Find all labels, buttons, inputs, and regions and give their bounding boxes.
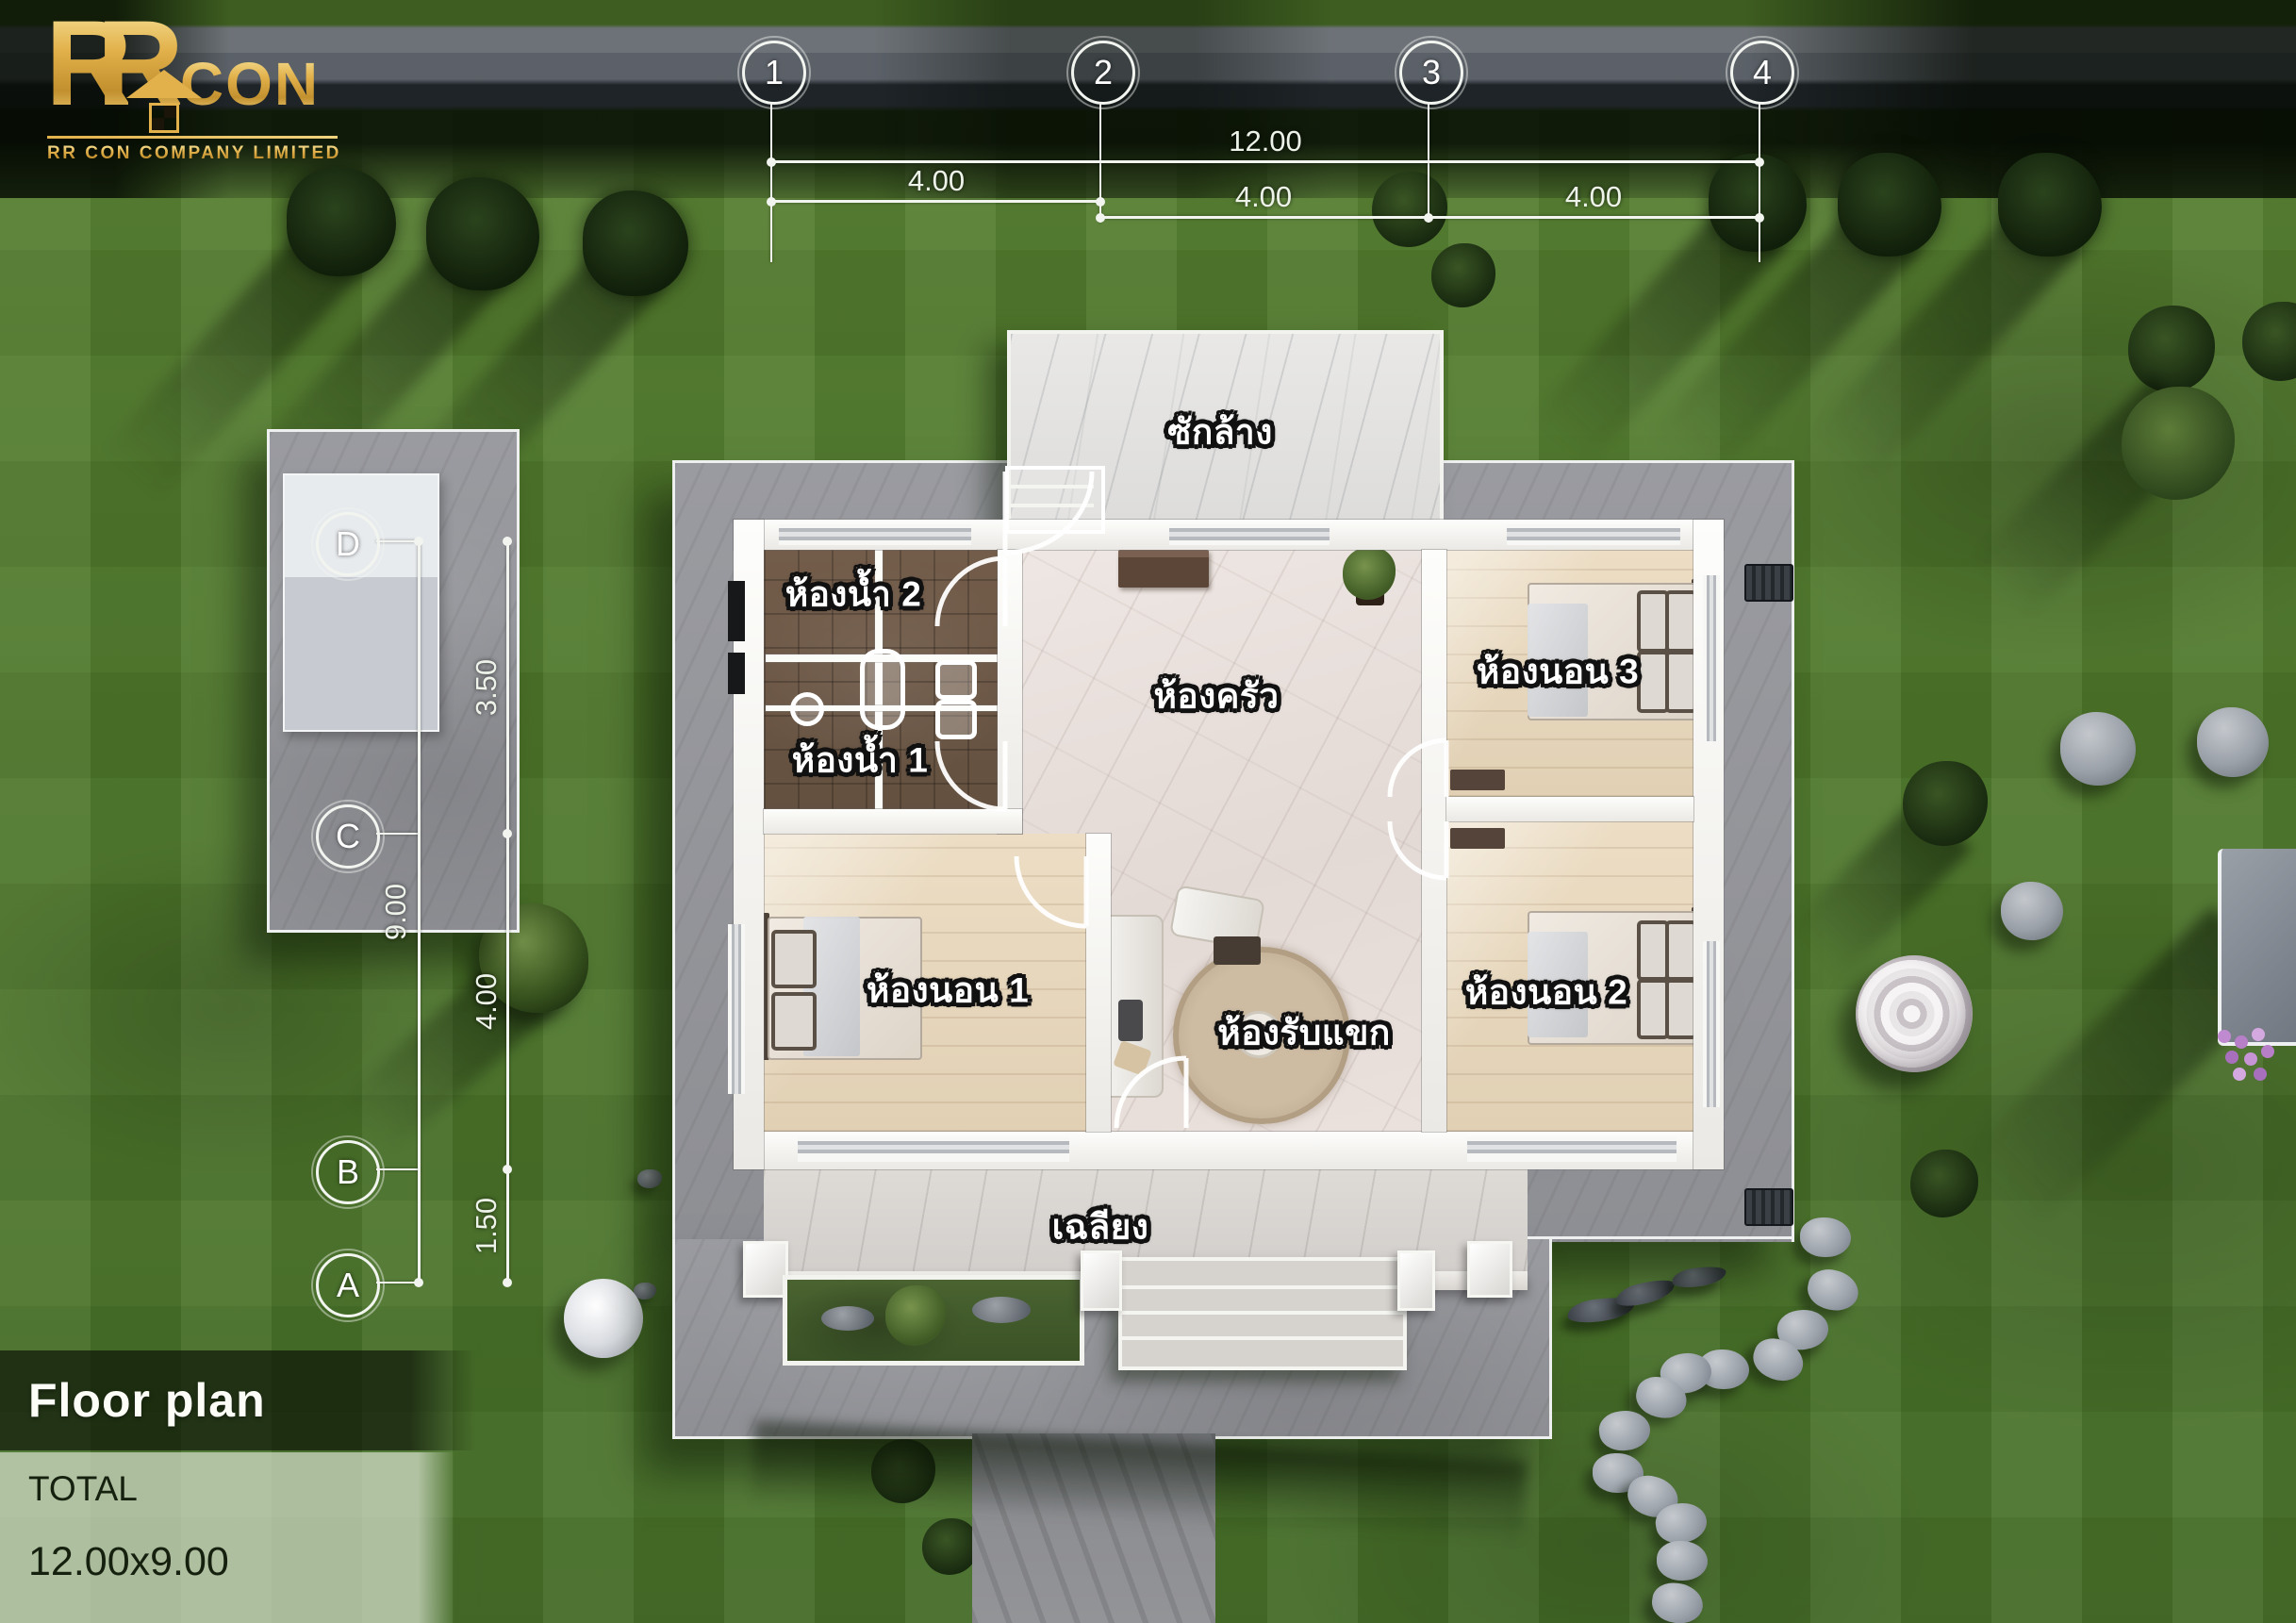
title-band: Floor plan bbox=[0, 1350, 476, 1450]
room-label-kitchen: ห้องครัว bbox=[1153, 669, 1279, 724]
dim-tick bbox=[767, 157, 776, 167]
grid-bubble-C-label: C bbox=[336, 817, 360, 856]
room-label-bath2: ห้องน้ำ 2 bbox=[785, 567, 922, 622]
grid-stem bbox=[770, 102, 772, 262]
grid-bubble-A-label: A bbox=[337, 1266, 359, 1305]
logo-lettermark: RRCON bbox=[45, 4, 320, 124]
total-label: TOTAL bbox=[28, 1469, 138, 1509]
room-label-bed1: ห้องนอน 1 bbox=[867, 963, 1029, 1019]
dim-tick bbox=[503, 829, 512, 838]
dim-line-overall-top bbox=[771, 160, 1759, 163]
room-label-porch: เฉลียง bbox=[1052, 1200, 1149, 1255]
dim-tick bbox=[1096, 197, 1105, 207]
dim-left-seg2: 4.00 bbox=[470, 973, 504, 1030]
grid-bubble-1-label: 1 bbox=[765, 53, 784, 92]
dim-tick bbox=[1424, 213, 1433, 223]
dim-left-seg3: 1.50 bbox=[470, 1198, 504, 1254]
door-arc-laundry bbox=[1005, 472, 1092, 553]
roof-icon bbox=[126, 70, 202, 98]
dim-tick bbox=[503, 537, 512, 546]
door-arc-bedroom1 bbox=[1016, 856, 1086, 926]
company-logo: RRCON RR CON COMPANY LIMITED bbox=[45, 17, 385, 158]
floor-plan-scene: ซักล้าง ห้องน้ำ 2 ห้องน้ำ 1 ห้องครัว ห้อ… bbox=[0, 0, 2296, 1623]
grid-bubble-D: D bbox=[316, 512, 380, 576]
dim-tick bbox=[1096, 213, 1105, 223]
grid-bubble-1: 1 bbox=[742, 41, 806, 105]
grid-bubble-4-label: 4 bbox=[1753, 53, 1772, 92]
dim-left-seg1: 3.50 bbox=[470, 659, 504, 716]
dim-tick bbox=[503, 1165, 512, 1174]
grid-bubble-3: 3 bbox=[1399, 41, 1463, 105]
grid-bubble-A: A bbox=[316, 1253, 380, 1317]
dim-tick bbox=[503, 1278, 512, 1287]
room-label-bed3: ห้องนอน 3 bbox=[1477, 644, 1639, 700]
grid-stem bbox=[376, 833, 420, 835]
dim-tick bbox=[767, 197, 776, 207]
grid-bubble-3-label: 3 bbox=[1422, 53, 1441, 92]
grid-stem bbox=[376, 1168, 420, 1170]
room-label-laundry: ซักล้าง bbox=[1167, 405, 1273, 460]
room-label-bath1: ห้องน้ำ 1 bbox=[792, 733, 929, 788]
grid-bubble-2: 2 bbox=[1071, 41, 1135, 105]
total-dimensions-value: 12.00x9.00 bbox=[28, 1539, 229, 1585]
dim-top-seg1: 4.00 bbox=[908, 164, 965, 198]
grid-bubble-2-label: 2 bbox=[1094, 53, 1113, 92]
dim-line-seg1 bbox=[771, 200, 1100, 203]
dim-tick bbox=[1755, 213, 1764, 223]
dim-tick bbox=[414, 1278, 423, 1287]
dim-overall-top: 12.00 bbox=[1229, 124, 1302, 158]
door-arc-bath1 bbox=[937, 741, 1005, 809]
grid-bubble-D-label: D bbox=[336, 524, 360, 564]
dim-line-overall-left bbox=[418, 541, 421, 1283]
door-arc-bedroom2 bbox=[1390, 821, 1446, 878]
dim-tick bbox=[414, 537, 423, 546]
grid-bubble-B: B bbox=[316, 1140, 380, 1204]
page-title: Floor plan bbox=[28, 1373, 266, 1428]
door-arc-front bbox=[1116, 1058, 1186, 1128]
dim-tick bbox=[1755, 157, 1764, 167]
grid-bubble-B-label: B bbox=[337, 1152, 359, 1192]
grid-bubble-4: 4 bbox=[1730, 41, 1794, 105]
door-arc-bath2 bbox=[937, 558, 1005, 626]
dim-top-seg3: 4.00 bbox=[1565, 180, 1622, 214]
dim-top-seg2: 4.00 bbox=[1235, 180, 1292, 214]
total-band: TOTAL 12.00x9.00 bbox=[0, 1452, 454, 1623]
roof-windows-icon bbox=[152, 106, 176, 130]
grid-stem bbox=[1759, 102, 1760, 262]
logo-company-name: RR CON COMPANY LIMITED bbox=[47, 143, 341, 164]
room-label-bed2: ห้องนอน 2 bbox=[1465, 965, 1627, 1020]
logo-underline bbox=[47, 136, 338, 139]
dim-overall-left: 9.00 bbox=[379, 884, 413, 940]
grid-bubble-C: C bbox=[316, 804, 380, 869]
room-label-living: ห้องรับแขก bbox=[1217, 1005, 1391, 1061]
door-arc-bedroom3 bbox=[1390, 740, 1446, 797]
